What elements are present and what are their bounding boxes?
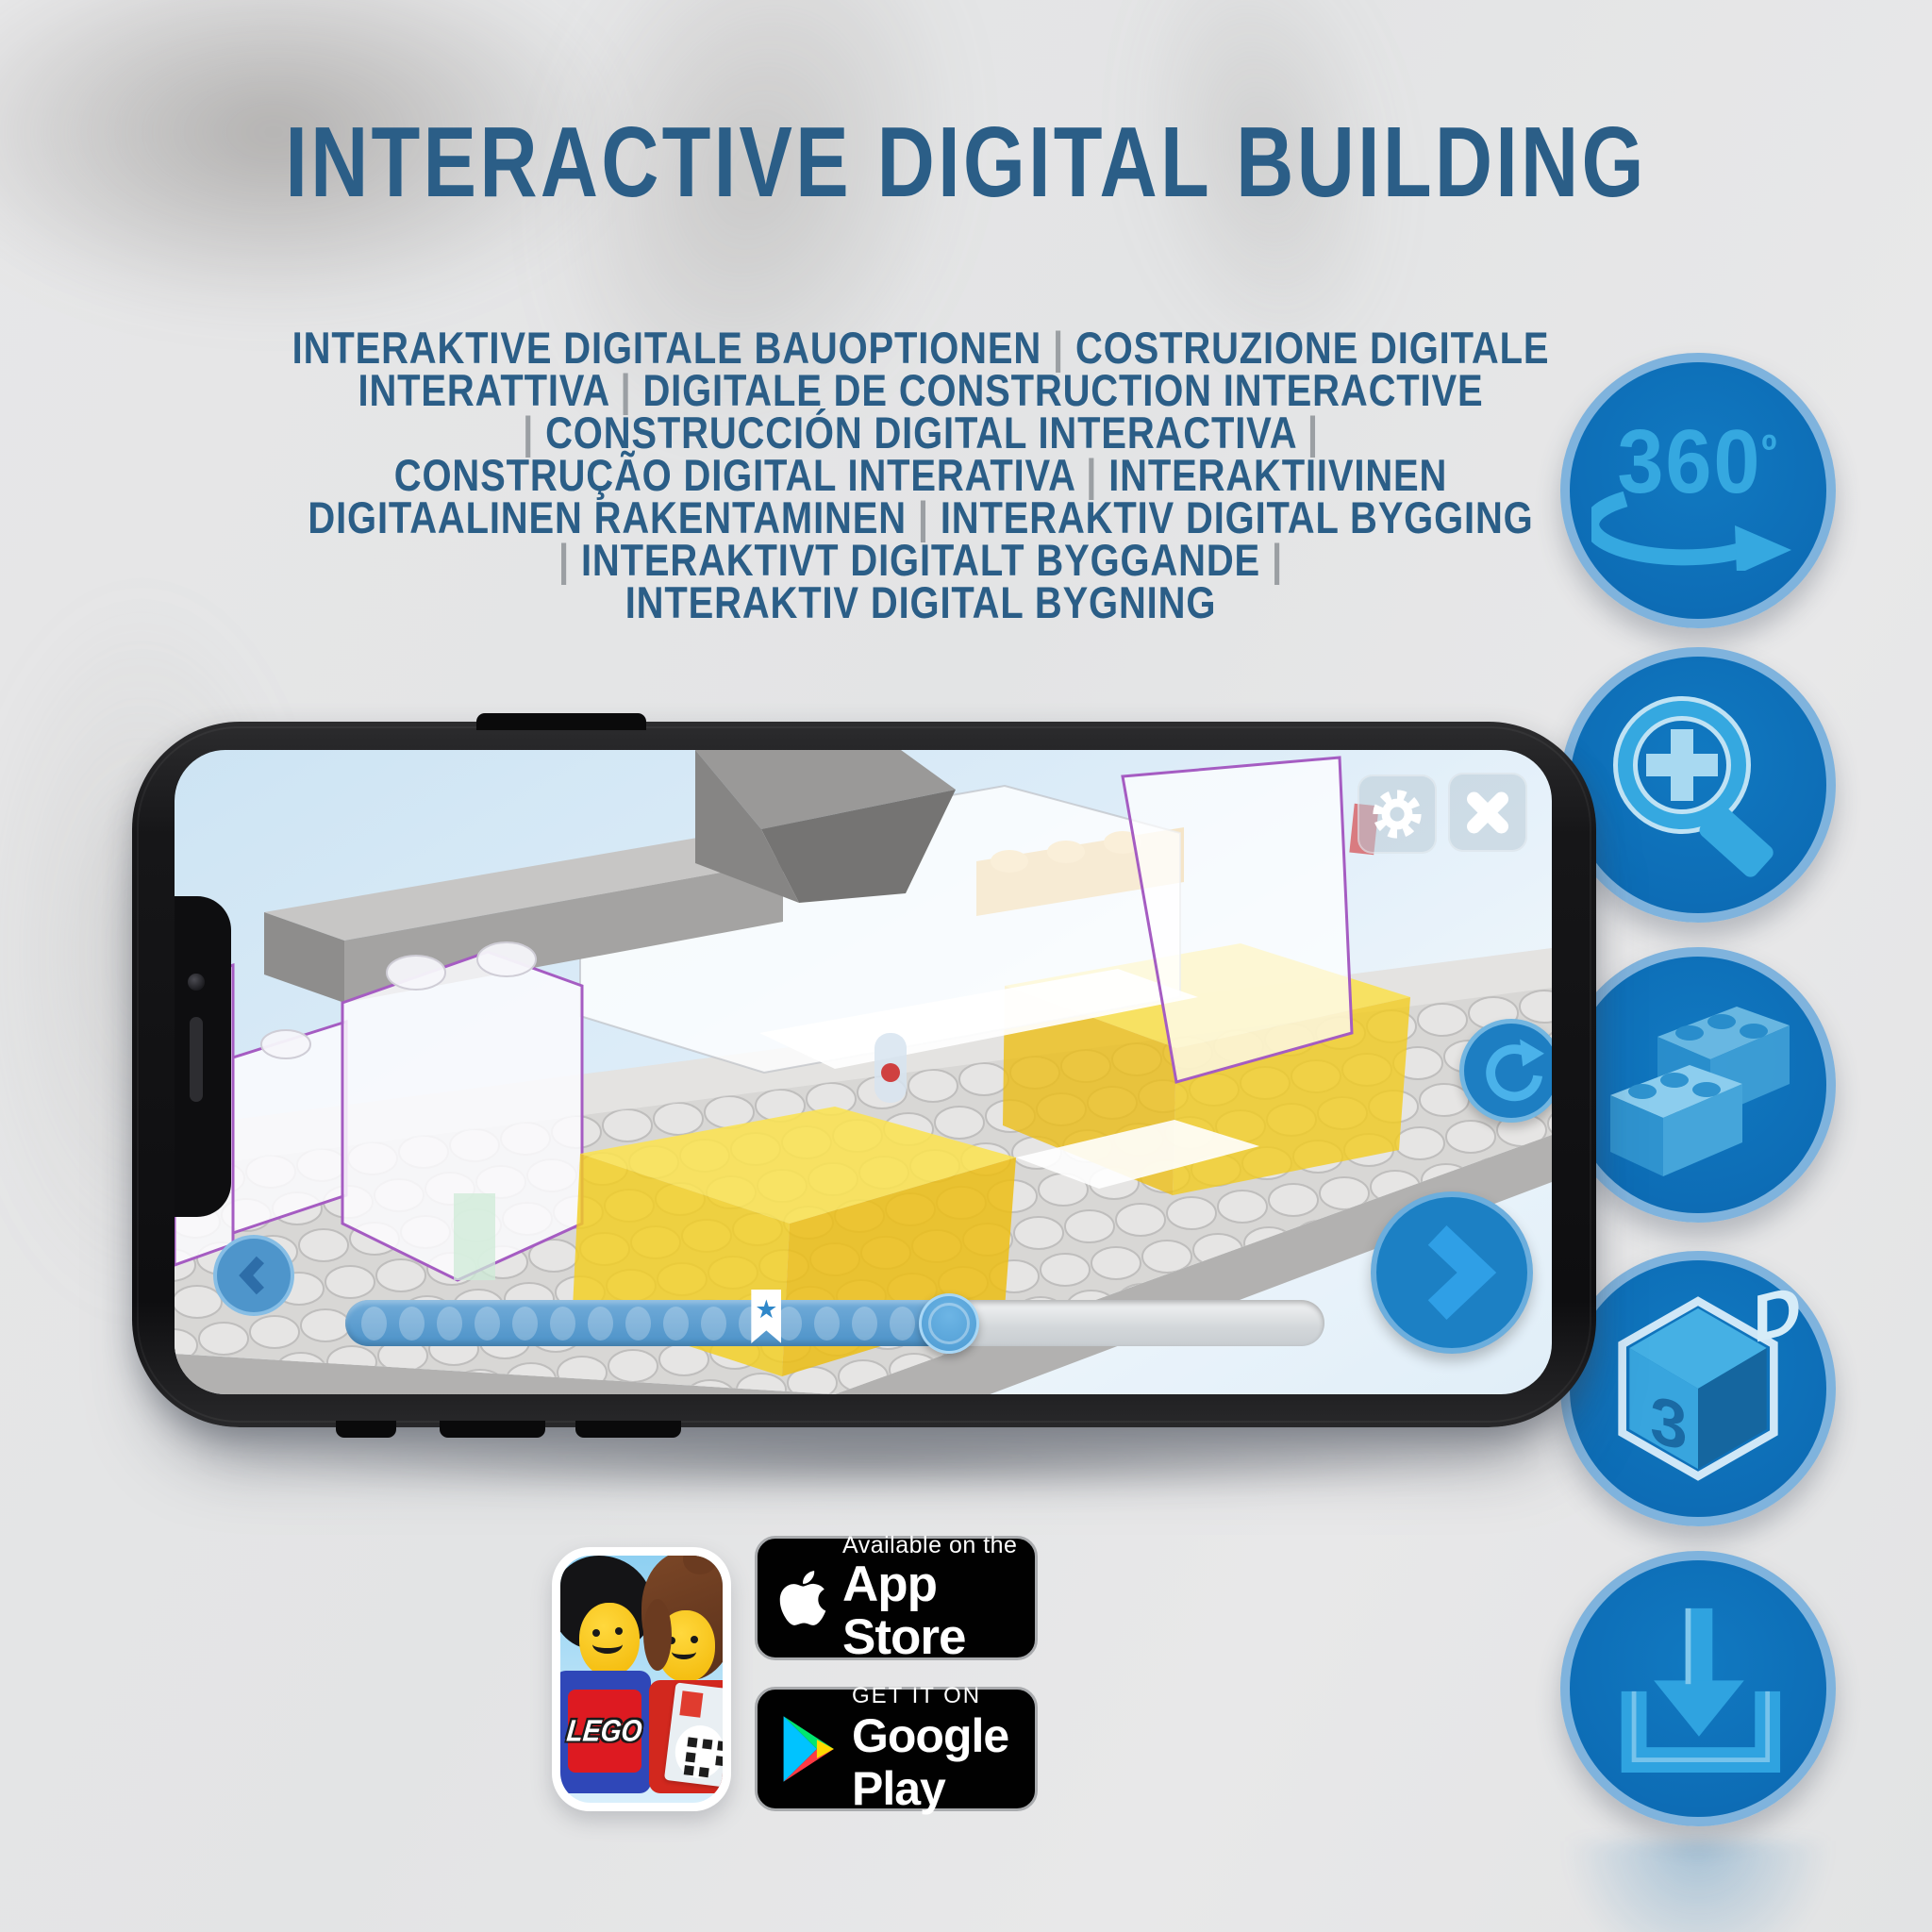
download-icon bbox=[1594, 1585, 1802, 1792]
rotate-reset-icon bbox=[1475, 1035, 1547, 1107]
phone-mute-switch bbox=[336, 1421, 396, 1438]
close-button[interactable] bbox=[1448, 773, 1527, 852]
app-store-tagline: Available on the bbox=[842, 1532, 1035, 1558]
feature-download bbox=[1560, 1551, 1836, 1826]
subtitle-line: | INTERAKTIVT DIGITALT BYGGANDE | bbox=[138, 539, 1703, 581]
build-progress-bar[interactable]: ★ bbox=[345, 1300, 1324, 1346]
progress-slider-knob[interactable] bbox=[919, 1293, 979, 1354]
subtitle-line: | CONSTRUCCIÓN DIGITAL INTERACTIVA | bbox=[138, 411, 1703, 454]
app-store-name: App Store bbox=[842, 1558, 1035, 1664]
lego-logo: LEGO bbox=[568, 1690, 641, 1773]
phone-mockup: ★ bbox=[132, 722, 1596, 1427]
phone-power-button bbox=[476, 713, 646, 730]
zoom-in-icon bbox=[1599, 686, 1797, 884]
front-camera bbox=[188, 974, 205, 991]
previous-step-button[interactable] bbox=[213, 1235, 294, 1316]
subtitle-line: INTERAKTIVE DIGITALE BAUOPTIONEN | COSTR… bbox=[138, 326, 1703, 369]
lego-3d-build-scene[interactable] bbox=[175, 750, 1552, 1394]
lego-brick-icon bbox=[1590, 976, 1807, 1193]
chevron-right-icon bbox=[1400, 1221, 1504, 1324]
google-play-triangle-icon bbox=[778, 1715, 837, 1783]
earpiece-speaker bbox=[190, 1017, 203, 1102]
feature-bricks bbox=[1560, 947, 1836, 1223]
feature-360-rotation: 360º bbox=[1560, 353, 1836, 628]
progress-fill bbox=[345, 1300, 949, 1346]
settings-button[interactable] bbox=[1357, 774, 1437, 854]
app-store-badge[interactable]: Available on the App Store bbox=[755, 1536, 1038, 1660]
apple-logo-icon bbox=[778, 1567, 827, 1629]
subtitle-line: INTERATTIVA | DIGITALE DE CONSTRUCTION I… bbox=[138, 369, 1703, 411]
chevron-left-icon bbox=[226, 1248, 281, 1303]
front-brick bbox=[1610, 1065, 1742, 1176]
phone-volume-up-button bbox=[440, 1421, 545, 1438]
page-title: INTERACTIVE DIGITAL BUILDING bbox=[193, 106, 1739, 220]
phone-notch bbox=[175, 896, 231, 1217]
cube-face-3: 3 bbox=[1650, 1382, 1687, 1466]
subtitle-line: CONSTRUÇÃO DIGITAL INTERATIVA | INTERAKT… bbox=[138, 454, 1703, 496]
qr-code bbox=[687, 1737, 697, 1747]
lego-app-promo-page: INTERACTIVE DIGITAL BUILDING INTERAKTIVE… bbox=[0, 0, 1932, 1932]
cube-face-d: D bbox=[1753, 1285, 1801, 1357]
phone-screen: ★ bbox=[175, 750, 1552, 1394]
3d-cube-icon: 3 D bbox=[1594, 1285, 1802, 1492]
subtitle-line: INTERAKTIV DIGITAL BYGNING bbox=[138, 581, 1703, 624]
phone-volume-down-button bbox=[575, 1421, 681, 1438]
app-icon-art: LEGO bbox=[560, 1556, 723, 1803]
360-degrees-icon: 360º bbox=[1618, 411, 1779, 503]
next-step-button[interactable] bbox=[1371, 1191, 1533, 1354]
gear-icon bbox=[1363, 780, 1431, 848]
lego-instructions-app-icon[interactable]: LEGO bbox=[552, 1547, 731, 1811]
google-play-badge[interactable]: GET IT ON Google Play bbox=[755, 1687, 1038, 1811]
feature-zoom bbox=[1560, 647, 1836, 923]
google-play-name: Google Play bbox=[852, 1709, 1035, 1815]
ghost-bricks-left bbox=[175, 952, 582, 1280]
feature-3d-view: 3 D bbox=[1560, 1251, 1836, 1526]
google-play-tagline: GET IT ON bbox=[852, 1683, 1035, 1709]
icon-reflection bbox=[1560, 1841, 1836, 1932]
minifig-girl-fringe bbox=[643, 1599, 672, 1671]
subtitle-line: DIGITAALINEN RAKENTAMINEN | INTERAKTIV D… bbox=[138, 496, 1703, 539]
minifig-boy-head bbox=[579, 1603, 640, 1676]
bookmark-star-icon: ★ bbox=[755, 1295, 777, 1324]
